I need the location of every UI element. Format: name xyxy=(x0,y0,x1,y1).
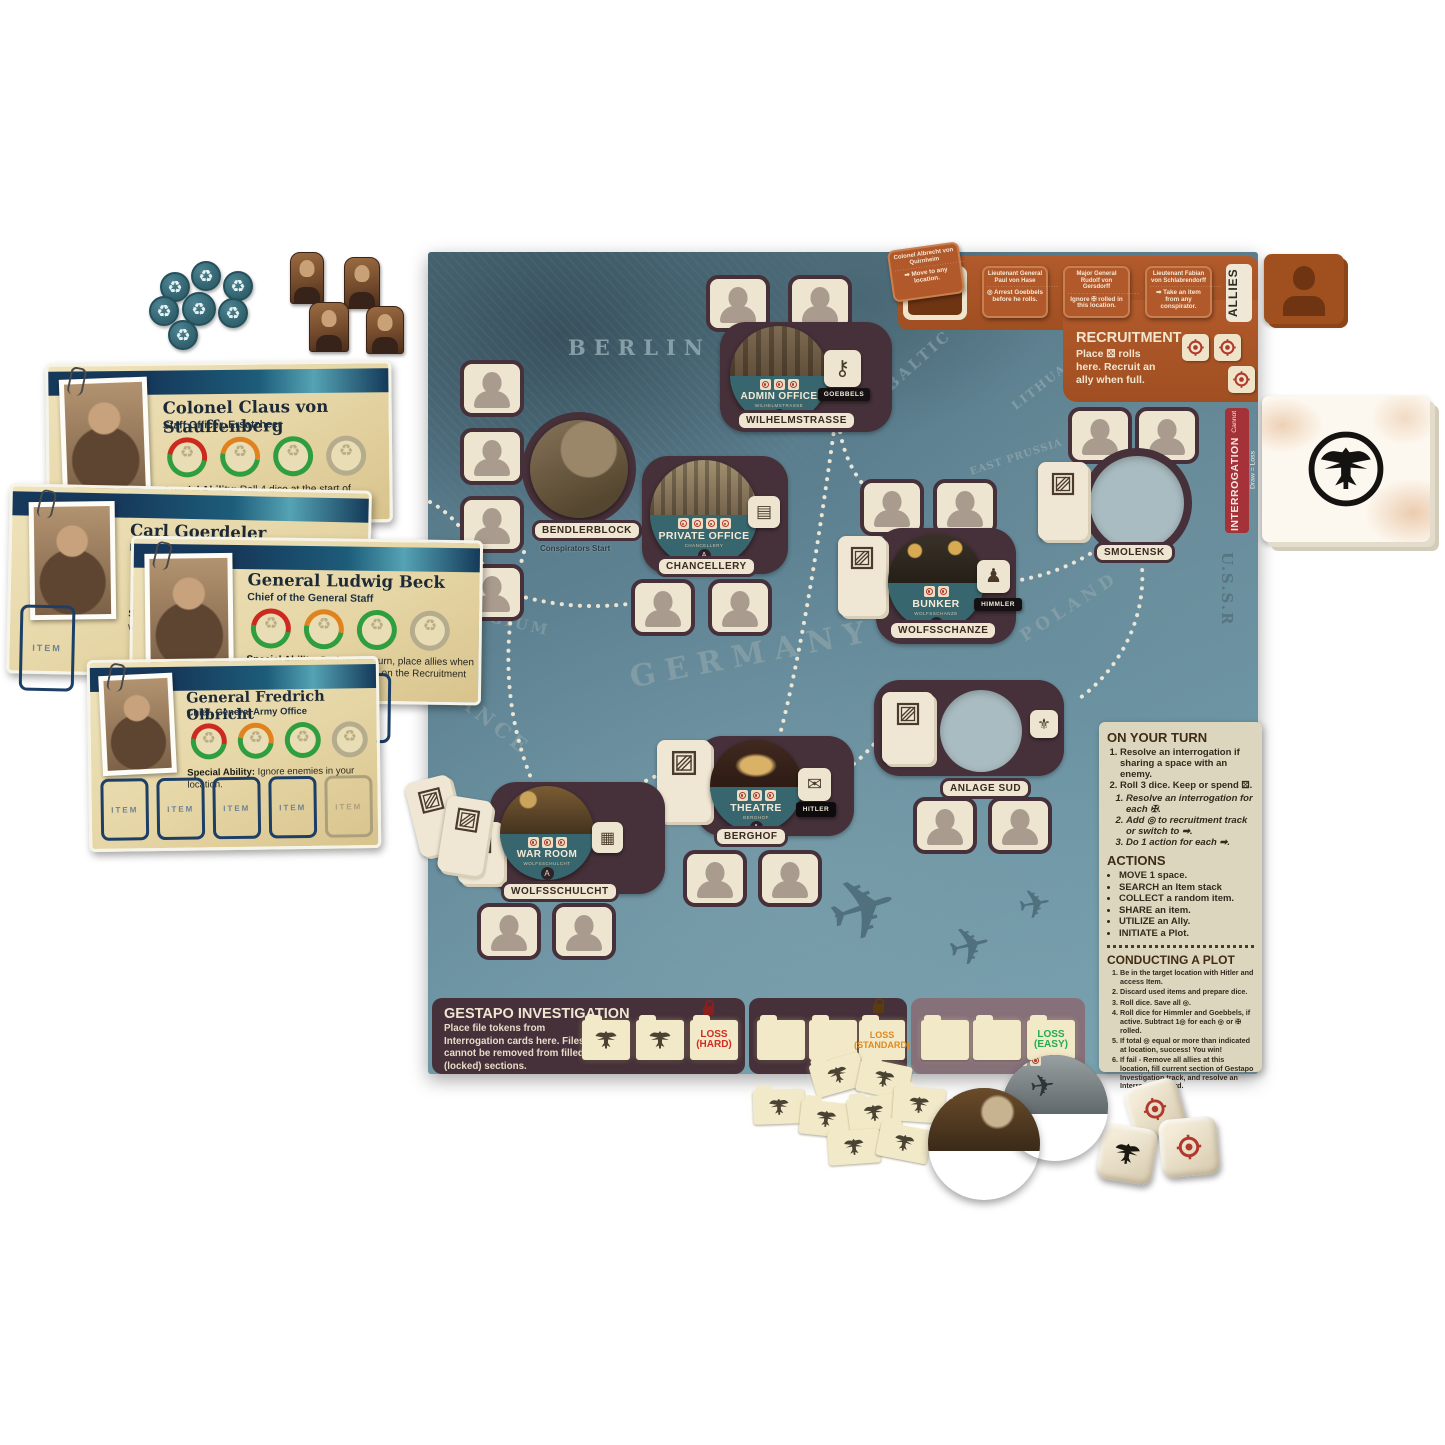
conspirator-slot xyxy=(708,579,772,636)
custom-die[interactable] xyxy=(1095,1122,1159,1186)
turn-substep: Resolve an interrogation for each ✠. xyxy=(1126,793,1254,815)
conspirator-slot xyxy=(988,797,1052,854)
ally-ability: Arrest Goebbels before he rolls. xyxy=(992,289,1043,303)
action-token[interactable]: ♻ xyxy=(168,320,198,350)
action-token[interactable]: ♻ xyxy=(218,298,248,328)
conspirator-standee[interactable] xyxy=(366,306,404,354)
recruitment-title: RECRUITMENT xyxy=(1076,330,1182,346)
person-silhouette-icon xyxy=(927,828,963,845)
location-label-wilhelmstrasse: WILHELMSTRASSE xyxy=(736,410,857,431)
plot-step: Roll dice. Save all ◎. xyxy=(1120,999,1254,1008)
ally-name: Lieutenant Fabian von Schlabrendorff xyxy=(1150,271,1207,284)
person-silhouette-icon xyxy=(874,510,910,527)
rules-panel: ON YOUR TURN Resolve an interrogation if… xyxy=(1099,722,1262,1072)
target-token[interactable] xyxy=(1182,334,1209,361)
location-name: ADMIN OFFICE xyxy=(740,391,817,402)
plot-dice-requirement xyxy=(760,379,799,390)
motivation-ring xyxy=(273,436,313,476)
ally-deck[interactable] xyxy=(1264,254,1344,324)
action-item: MOVE 1 space. xyxy=(1119,870,1254,882)
lock-icon xyxy=(873,1004,884,1013)
file-slot-empty xyxy=(921,1020,969,1060)
person-silhouette-icon xyxy=(772,881,808,898)
location-name: PRIVATE OFFICE xyxy=(659,530,750,542)
location-label-wolfsschanze: WOLFSSCHANZE xyxy=(888,620,998,641)
conspirators-start-note: Conspirators Start xyxy=(540,544,610,553)
turn-substep: Do 1 action for each ➡. xyxy=(1126,837,1254,848)
plot-heading: CONDUCTING A PLOT xyxy=(1107,953,1254,967)
key-item-tile[interactable]: ⚷ xyxy=(824,350,861,387)
location-photo xyxy=(500,786,594,841)
item-slot: ITEM xyxy=(19,604,76,691)
location-label-berghof: BERGHOF xyxy=(714,826,788,847)
person-silhouette-icon xyxy=(474,459,510,476)
card-title: Chief of the General Staff xyxy=(247,591,373,605)
item-slot: ITEM xyxy=(212,777,261,840)
item-stack[interactable] xyxy=(882,692,934,764)
notebook-item-tile[interactable]: ▦ xyxy=(592,822,623,853)
action-item: SHARE an item. xyxy=(1119,905,1254,917)
location-sublabel: WILHELMSTRASSE xyxy=(755,403,804,408)
motivation-ring xyxy=(304,609,345,650)
lock-icon xyxy=(703,1006,714,1015)
actions-heading: ACTIONS xyxy=(1107,853,1254,868)
action-item: SEARCH an Item stack xyxy=(1119,882,1254,894)
plot-dice-requirement xyxy=(737,790,776,801)
loss-folder-easy: LOSS (EASY) xyxy=(1027,1020,1075,1060)
loss-folder-hard: LOSS (HARD) xyxy=(690,1020,738,1060)
motivation-ring xyxy=(238,722,274,758)
interrogation-strip: INTERROGATION Cannot Draw = Loss xyxy=(1225,408,1249,533)
motivation-track xyxy=(191,721,368,759)
person-silhouette-icon xyxy=(720,306,756,323)
target-token[interactable] xyxy=(1228,366,1255,393)
ally-card-quirnheim[interactable]: Colonel Albrecht von Quirnheim ·········… xyxy=(887,241,966,303)
location-sublabel: CHANCELLERY xyxy=(685,543,724,548)
plot-step: If total ◎ equal or more than indicated … xyxy=(1120,1037,1254,1054)
card-name: General Ludwig Beck xyxy=(247,570,445,592)
item-stack[interactable] xyxy=(838,536,886,616)
item-slot: ITEM xyxy=(324,775,373,838)
target-face-icon xyxy=(1174,1132,1204,1162)
motivation-ring xyxy=(220,437,260,477)
location-label-bendlerblock: BENDLERBLOCK xyxy=(532,520,642,541)
turn-heading: ON YOUR TURN xyxy=(1107,730,1254,745)
motivation-track xyxy=(167,435,366,477)
gestapo-text: Place file tokens from Interrogation car… xyxy=(444,1023,594,1073)
person-silhouette-icon xyxy=(1293,266,1315,290)
ally-name: Major General Rudolf von Gersdorff xyxy=(1068,271,1125,291)
person-silhouette-icon xyxy=(645,610,681,627)
action-item: COLLECT a random item. xyxy=(1119,893,1254,905)
eagle-emblem-icon xyxy=(1307,430,1385,508)
motivation-ring xyxy=(285,722,321,758)
person-silhouette-icon xyxy=(1283,296,1325,316)
emblem-tile[interactable]: ⚜ xyxy=(1030,710,1058,738)
ally-card-gersdorff[interactable]: Major General Rudolf von Gersdorff ·····… xyxy=(1063,266,1130,318)
goebbels-marker[interactable]: GOEBBELS xyxy=(818,388,870,401)
airplane-silhouette: ✈ xyxy=(815,852,912,967)
conspirator-slot xyxy=(477,903,541,960)
card-title: Chief, General Army Office xyxy=(186,706,307,719)
ally-ability: Take an item from any conspirator. xyxy=(1160,289,1200,310)
location-space-smolensk xyxy=(1090,456,1184,550)
file-slot-filled xyxy=(582,1020,630,1060)
turn-step: Resolve an interrogation if sharing a sp… xyxy=(1120,747,1254,780)
ally-ability: Ignore ✠ rolled in this location. xyxy=(1070,296,1123,310)
recruitment-text: Place ⚄ rolls here. Recruit an ally when… xyxy=(1076,348,1168,387)
gestapo-panel-hard: GESTAPO INVESTIGATION Place file tokens … xyxy=(432,998,745,1074)
portrait-photo xyxy=(144,553,233,674)
conspirator-slot xyxy=(460,360,524,417)
file-slot-filled xyxy=(636,1020,684,1060)
custom-die[interactable] xyxy=(1158,1116,1221,1179)
target-token[interactable] xyxy=(1214,334,1241,361)
location-sublabel: WOLFSSCHANZE xyxy=(914,611,958,616)
location-tile-theatre[interactable]: THEATRE BERGHOF A xyxy=(710,740,802,832)
item-stack[interactable] xyxy=(657,740,711,822)
conspirator-standee[interactable] xyxy=(309,302,349,352)
portrait-photo xyxy=(59,377,151,500)
conspirator-slot xyxy=(631,579,695,636)
person-silhouette-icon xyxy=(491,934,527,951)
eagle-face-icon xyxy=(1111,1138,1143,1170)
location-label-wolfsschulcht: WOLFSSCHULCHT xyxy=(501,881,619,902)
turn-step: Roll 3 dice. Keep or spend ⚄. xyxy=(1120,780,1254,791)
motivation-ring xyxy=(191,723,227,759)
person-silhouette-icon xyxy=(722,610,758,627)
portrait-photo xyxy=(29,501,117,620)
conspirator-slot xyxy=(460,428,524,485)
motivation-ring xyxy=(332,721,368,757)
conspirator-standee[interactable] xyxy=(344,257,380,309)
detonator-item-tile[interactable]: ♟ xyxy=(977,560,1010,593)
person-silhouette-icon xyxy=(947,510,983,527)
plot-dice-requirement xyxy=(924,586,949,597)
card-title: Staff Officer, Ersatzheer xyxy=(163,418,282,431)
motivation-ring xyxy=(326,435,366,475)
airplane-silhouette: ✈ xyxy=(941,913,998,982)
location-letter: A xyxy=(541,867,554,880)
location-tile-war-room[interactable]: WAR ROOM WOLFSSCHULCHT A xyxy=(500,786,594,880)
map-label-berlin: BERLIN xyxy=(568,335,711,360)
item-slot-row: ITEM ITEM ITEM ITEM ITEM xyxy=(100,775,373,841)
location-space-anlage-sud xyxy=(940,690,1022,772)
ally-card-schlabrendorff[interactable]: Lieutenant Fabian von Schlabrendorff ···… xyxy=(1145,266,1212,318)
divider xyxy=(1107,945,1254,948)
envelope-item-tile[interactable]: ✉ xyxy=(798,768,831,801)
plot-dice-requirement xyxy=(678,518,731,529)
location-tile-map-room[interactable]: MAP ROOM ANLAGE SUD A xyxy=(928,1088,1040,1200)
hitler-standee[interactable]: HITLER xyxy=(796,802,836,817)
location-label-chancellery: CHANCELLERY xyxy=(656,556,757,577)
airplane-silhouette: ✈ xyxy=(1014,879,1055,930)
file-slot-empty xyxy=(757,1020,805,1060)
item-stack[interactable] xyxy=(1038,462,1088,540)
item-slot: ITEM xyxy=(268,776,317,839)
action-token[interactable]: ♻ xyxy=(223,271,253,301)
location-name: THEATRE xyxy=(730,802,782,814)
location-label-smolensk: SMOLENSK xyxy=(1094,542,1175,563)
conspirator-slot xyxy=(758,850,822,907)
map-label-ussr: U.S.S.R xyxy=(1218,552,1236,626)
item-slot: ITEM xyxy=(156,777,205,840)
location-label-anlage-sud: ANLAGE SUD xyxy=(940,778,1031,799)
conspirator-standee[interactable] xyxy=(290,252,324,304)
file-token[interactable] xyxy=(752,1089,805,1125)
action-item: INITIATE a Plot. xyxy=(1119,928,1254,940)
product-photo: ♻ ♻ ♻ ♻ ♻ ♻ ♻ Colonel Claus von Stauffen… xyxy=(0,0,1445,1445)
motivation-track xyxy=(251,608,451,651)
himmler-marker[interactable]: HIMMLER xyxy=(974,598,1022,611)
player-card-olbricht[interactable]: General Fredrich Olbricht Chief, General… xyxy=(87,656,382,852)
person-silhouette-icon xyxy=(802,306,838,323)
plot-dice-requirement xyxy=(528,837,567,848)
motivation-ring xyxy=(410,610,451,651)
location-sublabel: WOLFSSCHULCHT xyxy=(523,861,570,866)
interrogation-title: INTERROGATION xyxy=(1229,437,1241,531)
action-token[interactable]: ♻ xyxy=(191,261,221,291)
person-silhouette-icon xyxy=(566,934,602,951)
person-silhouette-icon xyxy=(1002,828,1038,845)
motivation-ring xyxy=(357,610,398,651)
person-silhouette-icon xyxy=(474,391,510,408)
location-photo xyxy=(888,534,984,590)
turn-substep: Add ◎ to recruitment track or switch to … xyxy=(1126,815,1254,837)
file-token[interactable] xyxy=(827,1128,881,1166)
plot-step: Roll dice for Himmler and Goebbels, if a… xyxy=(1120,1009,1254,1035)
location-photo xyxy=(650,460,758,523)
person-silhouette-icon xyxy=(697,881,733,898)
map-label-poland: POLAND xyxy=(1017,568,1123,646)
item-slot: ITEM xyxy=(100,778,149,841)
plot-step: Be in the target location with Hitler an… xyxy=(1120,969,1254,986)
location-sublabel: BERGHOF xyxy=(743,815,769,820)
file-slot-empty xyxy=(973,1020,1021,1060)
conspirator-slot xyxy=(683,850,747,907)
file-token[interactable] xyxy=(875,1121,933,1164)
interrogation-deck[interactable] xyxy=(1262,396,1430,542)
ally-name: Lieutenant General Paul von Hase xyxy=(987,271,1043,284)
motivation-ring xyxy=(251,608,292,649)
documents-item-tile[interactable]: ▤ xyxy=(748,496,780,528)
location-name: BUNKER xyxy=(912,598,959,610)
location-tile-bunker[interactable]: BUNKER WOLFSSCHANZE A xyxy=(888,534,984,630)
ally-card-hase[interactable]: Lieutenant General Paul von Hase ·······… xyxy=(982,266,1048,318)
portrait-photo xyxy=(98,673,177,776)
plot-step: Discard used items and prepare dice. xyxy=(1120,988,1254,997)
allies-tab: ALLIES xyxy=(1226,264,1252,322)
location-name: WAR ROOM xyxy=(517,849,577,860)
location-photo xyxy=(730,326,828,383)
action-item: UTILIZE an Ally. xyxy=(1119,916,1254,928)
motivation-ring xyxy=(167,437,207,477)
conspirator-slot xyxy=(552,903,616,960)
location-photo xyxy=(710,740,802,793)
recruitment-box: RECRUITMENT Place ⚄ rolls here. Recruit … xyxy=(1076,330,1182,387)
location-bendlerblock xyxy=(530,420,628,518)
location-tile-private-office[interactable]: PRIVATE OFFICE CHANCELLERY A xyxy=(650,460,758,568)
conspirator-slot xyxy=(913,797,977,854)
